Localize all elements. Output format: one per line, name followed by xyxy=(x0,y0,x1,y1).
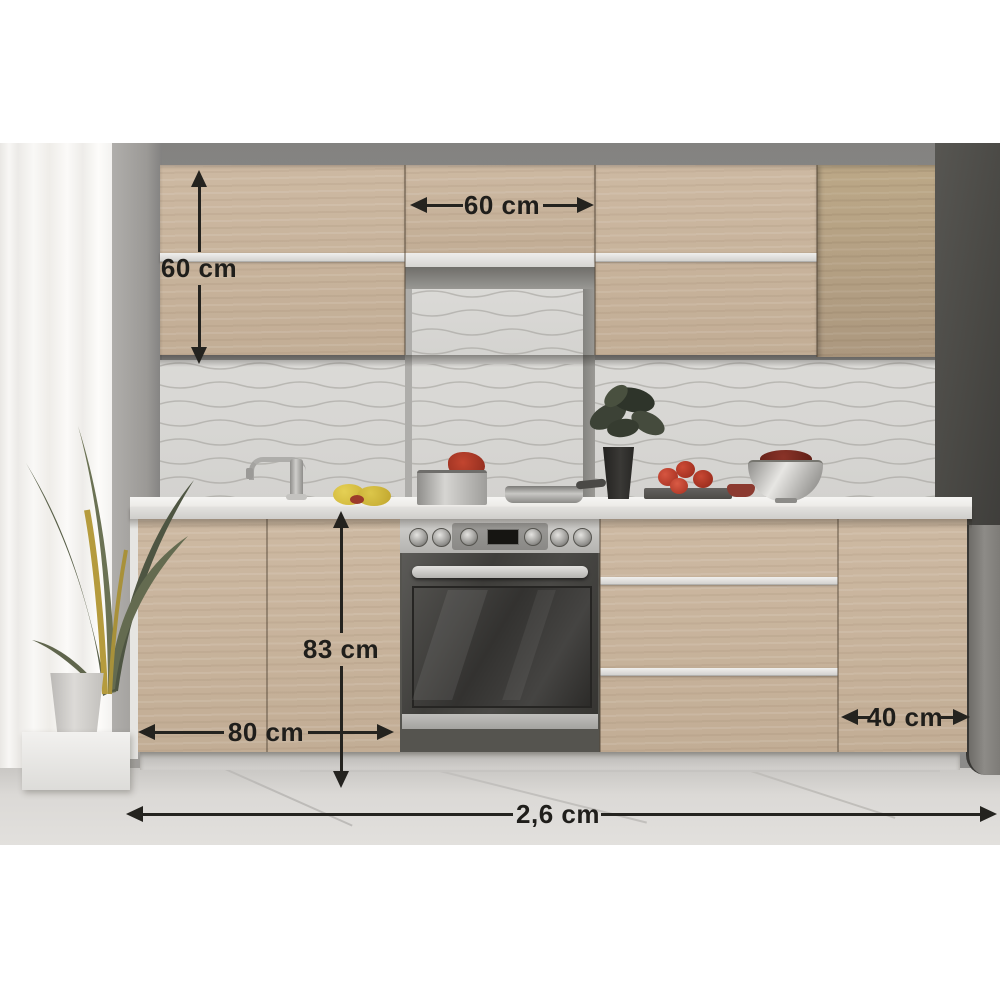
drawer-groove xyxy=(600,577,838,585)
stockpot xyxy=(417,470,487,505)
tomato xyxy=(693,470,713,488)
oven-bottom-strip xyxy=(402,714,598,729)
tiled-floor xyxy=(0,768,1000,845)
wall-cabinet-gap xyxy=(594,165,596,355)
window-ledge xyxy=(22,732,130,790)
oven-display xyxy=(487,529,519,545)
oven-knob xyxy=(524,528,542,546)
dim-line xyxy=(198,185,201,252)
dim-line xyxy=(141,813,513,816)
lemon-dish-accent xyxy=(350,495,364,504)
dim-arrowhead-right xyxy=(377,724,394,740)
tomato xyxy=(670,478,688,494)
dim-label-wall-cabinet-width: 60 cm xyxy=(458,190,546,220)
wall-cabinet-corner xyxy=(817,165,935,357)
dim-arrowhead-down xyxy=(333,771,349,788)
countertop-edge xyxy=(130,507,972,519)
plinth xyxy=(140,752,960,770)
tall-dark-unit xyxy=(935,143,1000,527)
dim-arrowhead-right xyxy=(953,709,970,725)
faucet-body xyxy=(290,459,303,499)
frying-pan xyxy=(505,486,583,503)
oven-handle xyxy=(412,566,588,578)
tomato xyxy=(676,461,695,478)
small-red-dish xyxy=(727,484,755,497)
dim-arrowhead-right xyxy=(980,806,997,822)
wall-cabinet-gap xyxy=(816,165,818,357)
floor-plant-leaves xyxy=(8,388,208,700)
vase-plant-leaves xyxy=(578,378,678,456)
dim-label-total-run-length: 2,6 cm xyxy=(513,799,603,829)
base-drawer-unit xyxy=(600,519,838,752)
dim-label-base-cabinet-height: 83 cm xyxy=(289,634,393,664)
floor-seam xyxy=(300,770,940,772)
oven-knob xyxy=(573,528,592,547)
dim-arrowhead-right xyxy=(577,197,594,213)
base-cabinet-gap xyxy=(599,519,601,752)
dim-line xyxy=(198,285,201,349)
dim-label-wall-cabinet-height: 60 cm xyxy=(144,253,254,283)
oven-knob xyxy=(550,528,569,547)
under-counter-shadow xyxy=(130,519,972,529)
dim-label-base-cabinet-width: 80 cm xyxy=(222,717,310,747)
cooker-hood-niche xyxy=(412,288,583,364)
dim-line xyxy=(153,731,224,734)
faucet-tip xyxy=(246,468,253,479)
kitchen-product-photo: 60 cm 60 cm 83 cm 80 cm 40 cm 2,6 cm xyxy=(0,0,1000,1000)
bowl-base xyxy=(775,498,797,503)
niche-shadow-left xyxy=(405,288,412,497)
dim-line xyxy=(543,204,579,207)
base-cabinet-gap xyxy=(837,519,839,752)
oven-knob xyxy=(432,528,451,547)
wall-cabinet-right-handle-groove xyxy=(595,253,817,262)
cutting-board xyxy=(644,488,732,499)
hood-underside-shadow xyxy=(405,267,595,289)
drawer-groove xyxy=(600,668,838,676)
dim-line xyxy=(601,813,982,816)
oven-knob xyxy=(409,528,428,547)
wall-cabinet-gap xyxy=(404,165,406,355)
plant-pot xyxy=(48,673,106,733)
fridge xyxy=(966,525,1000,775)
dim-line xyxy=(340,666,343,773)
dim-arrowhead-down xyxy=(191,347,207,364)
oven-knob xyxy=(460,528,478,546)
dim-line xyxy=(340,526,343,633)
faucet-base xyxy=(286,494,307,500)
dim-line xyxy=(308,731,379,734)
dim-label-right-base-cabinet-width: 40 cm xyxy=(864,702,946,732)
hood-shelf xyxy=(405,253,595,267)
